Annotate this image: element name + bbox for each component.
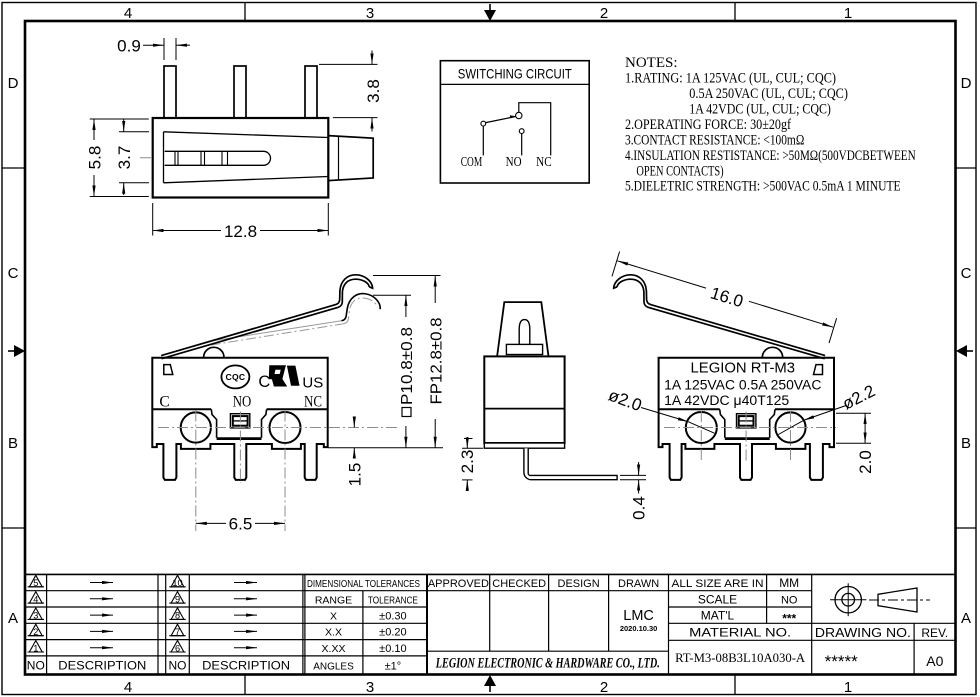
svg-text:3: 3 xyxy=(366,679,374,696)
svg-text:MAT'L: MAT'L xyxy=(701,609,735,623)
svg-text:4: 4 xyxy=(124,679,132,696)
svg-text:2.0: 2.0 xyxy=(856,450,875,474)
svg-text:A0: A0 xyxy=(926,653,943,669)
svg-text:TOLERANCE: TOLERANCE xyxy=(368,595,418,606)
svg-text:6.5: 6.5 xyxy=(229,515,253,534)
svg-text:2020.10.30: 2020.10.30 xyxy=(620,624,658,633)
svg-text:A: A xyxy=(961,610,971,627)
svg-text:B: B xyxy=(961,435,971,452)
svg-text:US: US xyxy=(302,375,323,392)
svg-text:RANGE: RANGE xyxy=(315,594,352,606)
svg-text:CHECKED: CHECKED xyxy=(492,578,546,590)
svg-text:ALL SIZE ARE IN: ALL SIZE ARE IN xyxy=(672,578,764,590)
svg-text:10: 10 xyxy=(172,578,182,588)
svg-text:9: 9 xyxy=(175,594,180,604)
svg-text:SCALE: SCALE xyxy=(698,592,737,606)
svg-text:7: 7 xyxy=(175,627,180,637)
svg-text:0.4: 0.4 xyxy=(630,496,649,520)
svg-text:2: 2 xyxy=(600,5,608,22)
svg-text:DESCRIPTION: DESCRIPTION xyxy=(58,661,146,673)
svg-text:MM: MM xyxy=(779,576,799,590)
svg-text:1A 125VAC 0.5A 250VAC: 1A 125VAC 0.5A 250VAC xyxy=(664,378,822,393)
svg-text:MATERIAL NO.: MATERIAL NO. xyxy=(689,626,791,640)
svg-text:3.8: 3.8 xyxy=(364,79,383,103)
svg-text:SWITCHING CIRCUIT: SWITCHING CIRCUIT xyxy=(458,66,572,82)
svg-text:LEGION RT-M3: LEGION RT-M3 xyxy=(691,361,796,377)
svg-text:5: 5 xyxy=(33,578,38,588)
svg-text:±0.10: ±0.10 xyxy=(379,643,406,655)
svg-text:NOTES:: NOTES: xyxy=(625,55,678,71)
svg-text:2: 2 xyxy=(600,679,608,696)
svg-text:RT-M3-08B3L10A030-A: RT-M3-08B3L10A030-A xyxy=(675,650,806,665)
svg-text:A: A xyxy=(8,610,18,627)
svg-text:±0.20: ±0.20 xyxy=(379,627,406,639)
svg-text:FP12.8±0.8: FP12.8±0.8 xyxy=(429,317,446,404)
svg-text:NC: NC xyxy=(536,155,552,170)
svg-text:±1°: ±1° xyxy=(385,661,402,673)
svg-text:X: X xyxy=(330,610,337,622)
svg-text:0.5A 250VAC (UL, CUL; CQC): 0.5A 250VAC (UL, CUL; CQC) xyxy=(689,86,848,102)
svg-text:1.RATING: 1A 125VAC (UL, CUL;: 1.RATING: 1A 125VAC (UL, CUL; CQC) xyxy=(625,71,836,87)
svg-text:NO: NO xyxy=(781,594,798,606)
svg-text:C: C xyxy=(258,373,270,391)
svg-text:LEGION ELECTRONIC & HARDWARE C: LEGION ELECTRONIC & HARDWARE CO., LTD. xyxy=(435,656,660,672)
svg-text:OPEN CONTACTS): OPEN CONTACTS) xyxy=(636,164,723,180)
svg-text:CQC: CQC xyxy=(226,372,246,382)
svg-text:8: 8 xyxy=(175,611,180,621)
svg-text:5.DIELETRIC STRENGTH: >500VAC: 5.DIELETRIC STRENGTH: >500VAC 0.5mA 1 MI… xyxy=(625,179,901,195)
svg-text:COM: COM xyxy=(461,155,483,170)
svg-text:2.OPERATING FORCE: 30±20gf: 2.OPERATING FORCE: 30±20gf xyxy=(625,117,791,133)
svg-text:B: B xyxy=(8,435,18,452)
svg-text:4.INSULATION RESTISTANCE: >50M: 4.INSULATION RESTISTANCE: >50MΩ(500VDCBE… xyxy=(625,148,916,164)
svg-text:1.5: 1.5 xyxy=(346,463,365,487)
svg-text:4: 4 xyxy=(33,594,38,604)
svg-text:0.9: 0.9 xyxy=(117,37,141,56)
svg-text:APPROVED: APPROVED xyxy=(428,578,489,590)
svg-text:LMC: LMC xyxy=(623,608,654,624)
svg-text:12.8: 12.8 xyxy=(224,222,257,241)
svg-text:NO: NO xyxy=(506,155,522,170)
svg-text:NO: NO xyxy=(233,394,252,411)
svg-text:DIMENSIONAL TOLERANCES: DIMENSIONAL TOLERANCES xyxy=(307,578,420,590)
svg-text:*****: ***** xyxy=(825,652,858,671)
svg-text:C: C xyxy=(8,265,19,282)
svg-text:1: 1 xyxy=(844,5,852,22)
svg-text:C: C xyxy=(961,265,972,282)
svg-text:D: D xyxy=(8,75,19,92)
svg-text:DESCRIPTION: DESCRIPTION xyxy=(202,661,290,673)
svg-text:4: 4 xyxy=(124,5,132,22)
svg-text:1A 42VDC (UL, CUL; CQC): 1A 42VDC (UL, CUL; CQC) xyxy=(689,102,831,118)
svg-text:DRAWING NO.: DRAWING NO. xyxy=(815,626,911,640)
svg-text:6: 6 xyxy=(175,643,180,653)
svg-text:2.3: 2.3 xyxy=(458,450,477,474)
svg-text:3.CONTACT RESISTANCE: <100mΩ: 3.CONTACT RESISTANCE: <100mΩ xyxy=(625,133,804,149)
svg-text:3: 3 xyxy=(366,5,374,22)
svg-text:D: D xyxy=(961,75,972,92)
svg-text:3.7: 3.7 xyxy=(115,146,134,170)
svg-text:±0.30: ±0.30 xyxy=(379,610,406,622)
svg-text:DESIGN: DESIGN xyxy=(558,578,600,590)
svg-text:C: C xyxy=(159,394,169,411)
svg-text:P10.8±0.8: P10.8±0.8 xyxy=(399,327,416,405)
svg-text:NC: NC xyxy=(304,394,322,411)
svg-text:REV.: REV. xyxy=(921,626,948,640)
svg-text:NO: NO xyxy=(169,659,187,673)
svg-text:1: 1 xyxy=(33,643,38,653)
svg-text:5.8: 5.8 xyxy=(86,146,105,170)
svg-text:X.X: X.X xyxy=(325,627,342,639)
svg-text:X.XX: X.XX xyxy=(322,643,346,655)
svg-text:2: 2 xyxy=(33,627,38,637)
svg-text:1: 1 xyxy=(844,679,852,696)
svg-text:DRAWN: DRAWN xyxy=(618,578,659,590)
svg-text:***: *** xyxy=(782,612,796,626)
svg-text:1A 42VDC μ40T125: 1A 42VDC μ40T125 xyxy=(664,393,789,408)
svg-text:3: 3 xyxy=(33,611,38,621)
svg-text:NO: NO xyxy=(27,659,45,673)
svg-text:ANGLES: ANGLES xyxy=(313,662,354,673)
